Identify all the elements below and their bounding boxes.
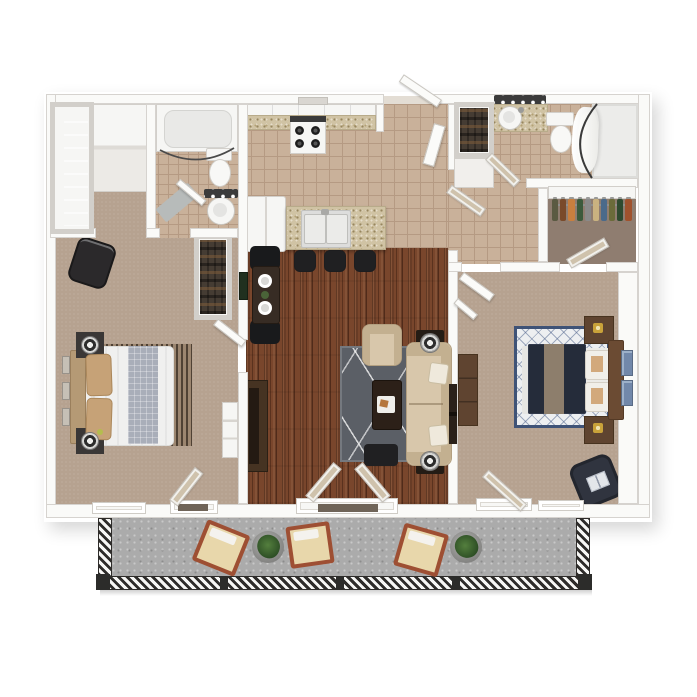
wall-bedroom2-top-a <box>448 262 462 272</box>
wall-bath1-bottom-b <box>190 228 238 238</box>
entry-alcove <box>454 158 494 188</box>
toilet-1-bowl <box>209 159 231 187</box>
wall-center-left-upper <box>238 104 248 340</box>
french-door-opening <box>318 504 378 512</box>
rail-post-left <box>96 574 110 590</box>
nightstand-plant <box>97 429 103 435</box>
stove-control-panel <box>290 116 326 122</box>
entry-closet-shoes <box>460 108 488 152</box>
wall-frame-2 <box>62 382 70 400</box>
patio-chair-2 <box>285 521 334 569</box>
nightstand-right-bottom-lamp <box>593 423 603 433</box>
closet-left-folded-clothes <box>64 110 88 226</box>
wall-bedroom2-top-c <box>606 262 638 272</box>
bathtub-basin <box>164 110 232 148</box>
clothes-item <box>593 199 599 221</box>
toilet-2-tank <box>546 112 574 126</box>
media-console-tv <box>249 388 259 464</box>
bedroom-right-art-b <box>621 380 633 406</box>
wall-center-left-lower <box>238 372 248 504</box>
clothes-item <box>617 199 622 221</box>
nightstand-right-top-lamp <box>593 323 603 333</box>
closet-2-shelf <box>548 186 636 199</box>
toilet-2-bowl <box>550 125 572 153</box>
faucet-2 <box>518 107 524 113</box>
coffee-table-book <box>379 399 388 408</box>
dresser-right <box>458 354 478 426</box>
wall-closet2-left <box>538 188 548 262</box>
clothes-item <box>560 199 565 221</box>
burner-3 <box>295 139 304 148</box>
pedestal-sink-1-basin <box>213 203 227 217</box>
bed-left-runner <box>128 346 158 444</box>
wall-bath1-left <box>146 104 156 238</box>
clothes-item <box>568 199 575 221</box>
burner-1 <box>295 126 304 135</box>
patio-chair-1-towel <box>209 527 237 545</box>
wall-counter-stub <box>376 104 384 132</box>
table-centerpiece <box>261 291 269 299</box>
bar-stool-3 <box>354 250 376 272</box>
lamp-left-bottom <box>82 433 98 449</box>
patio-chair-3-towel <box>408 530 436 546</box>
wall-frame-3 <box>62 408 70 426</box>
clothes-item <box>601 199 606 221</box>
dinner-plate-2 <box>258 301 272 315</box>
rail-post-right <box>578 574 592 590</box>
shower-curtain-fold <box>578 112 598 170</box>
dinner-plate-1 <box>258 274 272 288</box>
bed-right-runner <box>544 344 564 414</box>
clothes-item <box>552 199 558 221</box>
bar-stool-1 <box>294 250 316 272</box>
armchair-arm-right <box>394 325 401 365</box>
refrigerator <box>246 196 286 252</box>
bedroom-right-window-sill <box>538 500 584 511</box>
bar-stool-2 <box>324 250 346 272</box>
rail-post-mid-1 <box>220 576 228 589</box>
island-sink-basin-right <box>326 214 348 244</box>
lamp-left-top <box>82 337 98 353</box>
armchair <box>362 324 402 366</box>
island-sink-basin-left <box>304 214 326 244</box>
floor-plan-canvas <box>0 0 697 697</box>
wall-frame-1 <box>62 356 70 374</box>
hall-closet-shelves <box>200 240 226 314</box>
patio-chair-2-towel <box>293 529 319 541</box>
island-faucet <box>321 209 329 215</box>
pillow-left-a <box>85 354 112 397</box>
closet-2-hanging-clothes <box>552 199 632 223</box>
dining-wall-art <box>239 272 248 300</box>
end-table-lamp-bottom <box>421 452 439 470</box>
sofa-cushion-divider <box>409 403 443 405</box>
balcony-floor <box>110 518 578 576</box>
pillow-right-b-accent <box>591 388 603 404</box>
burner-2 <box>311 126 320 135</box>
rail-post-mid-2 <box>336 576 344 589</box>
vanity-lights-1 <box>204 189 238 198</box>
balcony-shadow <box>100 590 592 596</box>
wall-tv <box>449 384 457 444</box>
clothes-item <box>577 199 582 221</box>
bedroom-left-door-opening <box>178 504 208 511</box>
sofa-pillow-bottom <box>428 424 449 447</box>
hall-wardrobe <box>92 104 152 192</box>
burner-4 <box>311 139 320 148</box>
bedroom-left-window-sill <box>92 502 146 514</box>
rail-post-mid-3 <box>452 576 460 589</box>
armchair-arm-left <box>363 325 370 365</box>
end-table-lamp-top <box>421 334 439 352</box>
wall-bedroom2-top-b <box>500 262 560 272</box>
sink-2-basin <box>503 111 515 123</box>
sofa <box>406 342 452 466</box>
clothes-item <box>625 199 632 221</box>
dresser-left <box>222 402 238 458</box>
vanity-lights-2 <box>494 95 546 104</box>
outer-wall-right <box>638 94 650 518</box>
balcony-rail-bottom <box>98 576 590 590</box>
floor-shower <box>592 104 638 178</box>
outer-wall-top-left <box>46 94 384 104</box>
kitchen-window-vent <box>298 97 328 105</box>
bedroom-right-art-a <box>621 350 633 376</box>
wall-bath1-bottom-a <box>146 228 160 238</box>
clothes-item <box>609 199 615 221</box>
clothes-item <box>585 199 591 221</box>
sofa-pillow-top <box>428 362 450 385</box>
ottoman <box>364 444 398 466</box>
pillow-right-a-accent <box>591 356 603 372</box>
